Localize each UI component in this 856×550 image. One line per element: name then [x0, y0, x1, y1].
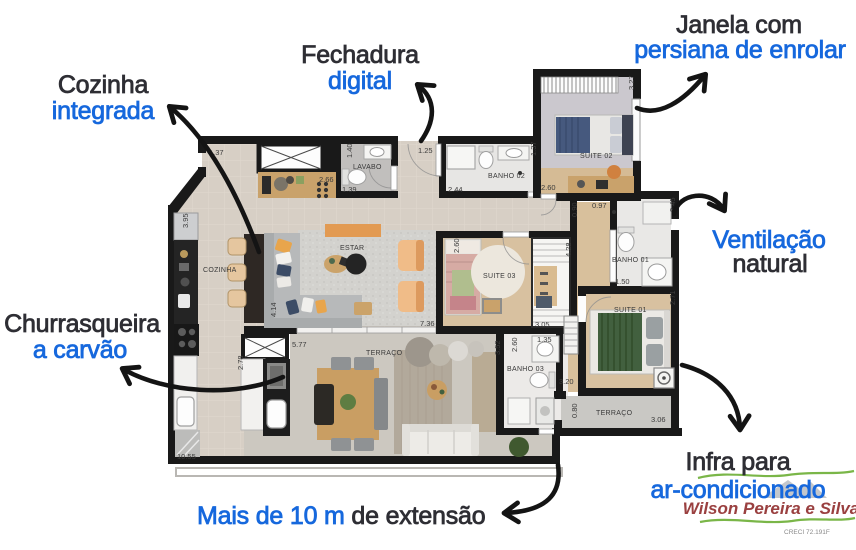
svg-text:Churrasqueira: Churrasqueira [4, 310, 160, 338]
svg-text:4.28: 4.28 [564, 242, 573, 257]
svg-text:3.95: 3.95 [181, 213, 190, 228]
svg-text:1.40: 1.40 [345, 143, 354, 158]
svg-text:0.97: 0.97 [592, 201, 607, 210]
svg-text:BANHO 03: BANHO 03 [507, 366, 544, 373]
svg-text:CRECI 72.191F: CRECI 72.191F [784, 529, 830, 536]
svg-text:1.35: 1.35 [537, 335, 552, 344]
svg-text:3.52: 3.52 [493, 340, 502, 355]
svg-text:LAVABO: LAVABO [353, 164, 382, 171]
svg-text:2.60: 2.60 [510, 337, 519, 352]
svg-text:persiana de enrolar: persiana de enrolar [634, 36, 846, 64]
svg-text:TERRAÇO: TERRAÇO [596, 410, 633, 417]
svg-text:Cozinha: Cozinha [58, 71, 149, 99]
svg-text:2.60: 2.60 [541, 183, 556, 192]
svg-text:2.60: 2.60 [452, 238, 461, 253]
svg-text:2.66: 2.66 [319, 175, 334, 184]
svg-text:Mais de 10 m de extensão: Mais de 10 m de extensão [197, 502, 485, 530]
svg-text:3.06: 3.06 [651, 415, 666, 424]
svg-text:TERRAÇO: TERRAÇO [366, 350, 403, 357]
svg-text:Janela com: Janela com [676, 11, 802, 39]
svg-text:1.25: 1.25 [418, 146, 433, 155]
svg-text:7.36: 7.36 [420, 319, 435, 328]
svg-text:BANHO 02: BANHO 02 [488, 173, 525, 180]
svg-text:2.71: 2.71 [668, 290, 677, 305]
svg-text:integrada: integrada [52, 97, 155, 125]
svg-text:a carvão: a carvão [33, 336, 127, 364]
svg-text:Wilson Pereira e Silva: Wilson Pereira e Silva [683, 499, 856, 518]
svg-text:2.44: 2.44 [448, 185, 463, 194]
svg-text:SUITE 02: SUITE 02 [580, 153, 613, 160]
svg-text:3.27: 3.27 [627, 75, 636, 90]
svg-text:SUITE 01: SUITE 01 [614, 307, 647, 314]
svg-text:10.55: 10.55 [177, 452, 196, 461]
svg-text:1.39: 1.39 [342, 185, 357, 194]
svg-text:BANHO 01: BANHO 01 [612, 257, 649, 264]
svg-text:2.78: 2.78 [236, 355, 245, 370]
svg-text:digital: digital [328, 67, 392, 95]
svg-text:SUITE 03: SUITE 03 [483, 273, 516, 280]
svg-text:1.37: 1.37 [529, 141, 538, 156]
svg-text:0.90: 0.90 [570, 202, 579, 217]
svg-text:Infra para: Infra para [685, 448, 790, 476]
svg-text:Fechadura: Fechadura [301, 41, 419, 69]
svg-text:natural: natural [732, 250, 807, 278]
svg-text:5.77: 5.77 [292, 340, 307, 349]
svg-text:ESTAR: ESTAR [340, 245, 364, 252]
svg-text:1.50: 1.50 [615, 277, 630, 286]
svg-text:3.20: 3.20 [559, 377, 574, 386]
svg-text:3.05: 3.05 [535, 320, 550, 329]
svg-text:COZINHA: COZINHA [203, 267, 237, 274]
svg-text:0.80: 0.80 [570, 403, 579, 418]
svg-text:4.14: 4.14 [269, 302, 278, 317]
